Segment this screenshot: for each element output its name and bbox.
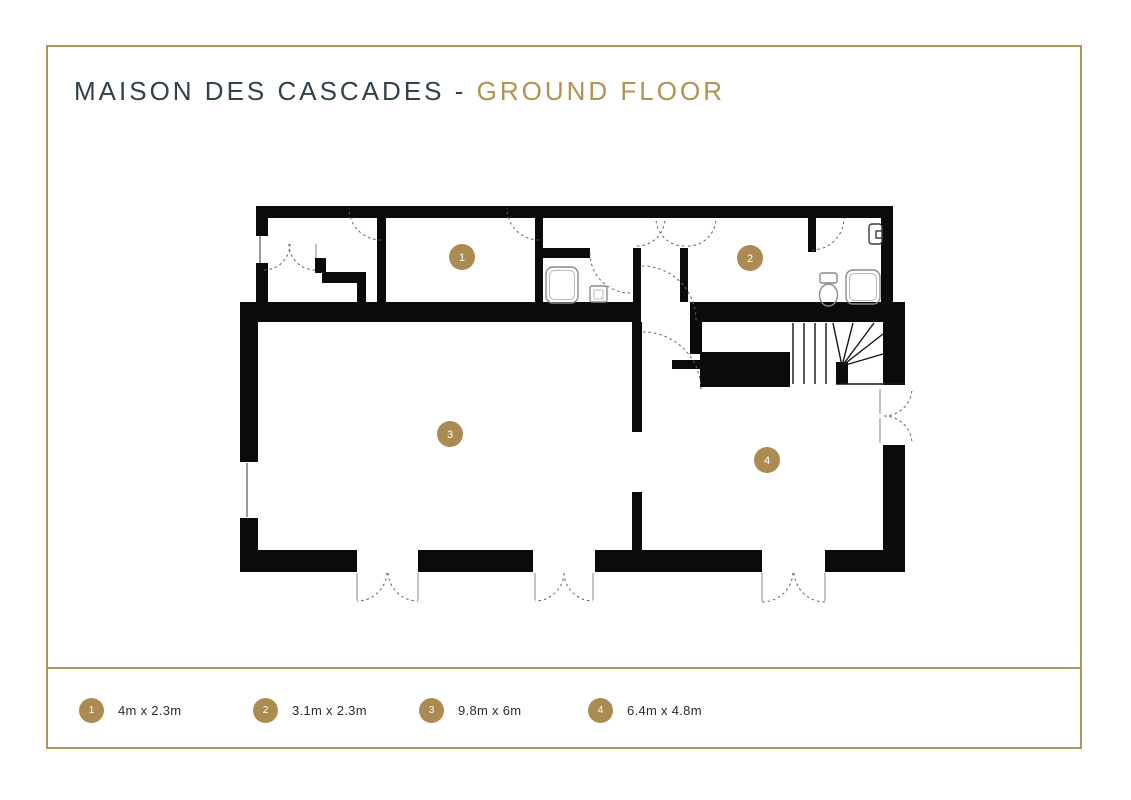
window (259, 236, 261, 263)
door-arcs (264, 208, 912, 602)
floor-plan-page: MAISON DES CASCADES - GROUND FLOOR (0, 0, 1131, 800)
legend-circle-4: 4 (588, 698, 613, 723)
fixtures (546, 224, 882, 306)
toilet-icon (590, 286, 607, 302)
shower-tray-icon (550, 271, 575, 300)
legend-label-3: 9.8m x 6m (458, 703, 521, 718)
legend-label-4: 6.4m x 4.8m (627, 703, 702, 718)
door-arc (289, 244, 315, 270)
room-marker-4-number: 4 (764, 455, 770, 467)
door-arc (590, 253, 630, 293)
door-arc (637, 218, 665, 246)
window (246, 463, 248, 517)
door-arc (357, 573, 387, 601)
legend-circle-1: 1 (79, 698, 104, 723)
legend-item-1: 1 4m x 2.3m (79, 697, 181, 723)
legend-item-3: 3 9.8m x 6m (419, 697, 521, 723)
door-arc (812, 218, 844, 250)
basin-tap-icon (876, 231, 882, 238)
shower-tray-icon (850, 274, 877, 301)
room-marker-1-number: 1 (459, 252, 465, 264)
floor-plan: 1 2 3 4 (0, 0, 1131, 800)
door-arc (884, 416, 912, 444)
legend-item-4: 4 6.4m x 4.8m (588, 697, 702, 723)
toilet-tank-icon (820, 273, 837, 283)
door-arc (688, 218, 716, 246)
legend-label-2: 3.1m x 2.3m (292, 703, 367, 718)
room-marker-3-number: 3 (447, 429, 453, 441)
door-arc (656, 218, 684, 246)
walls (240, 206, 905, 572)
door-arc (794, 573, 825, 602)
door-arc (884, 388, 912, 416)
toilet-seat-icon (594, 290, 603, 299)
door-arc (535, 573, 564, 601)
door-arc (762, 573, 793, 602)
legend-item-2: 2 3.1m x 2.3m (253, 697, 367, 723)
legend-label-1: 4m x 2.3m (118, 703, 181, 718)
legend-circle-3: 3 (419, 698, 444, 723)
door-arc (564, 573, 593, 601)
legend-separator (46, 667, 1082, 669)
door-arc (388, 573, 418, 601)
legend-circle-2: 2 (253, 698, 278, 723)
room-marker-2-number: 2 (747, 253, 753, 265)
